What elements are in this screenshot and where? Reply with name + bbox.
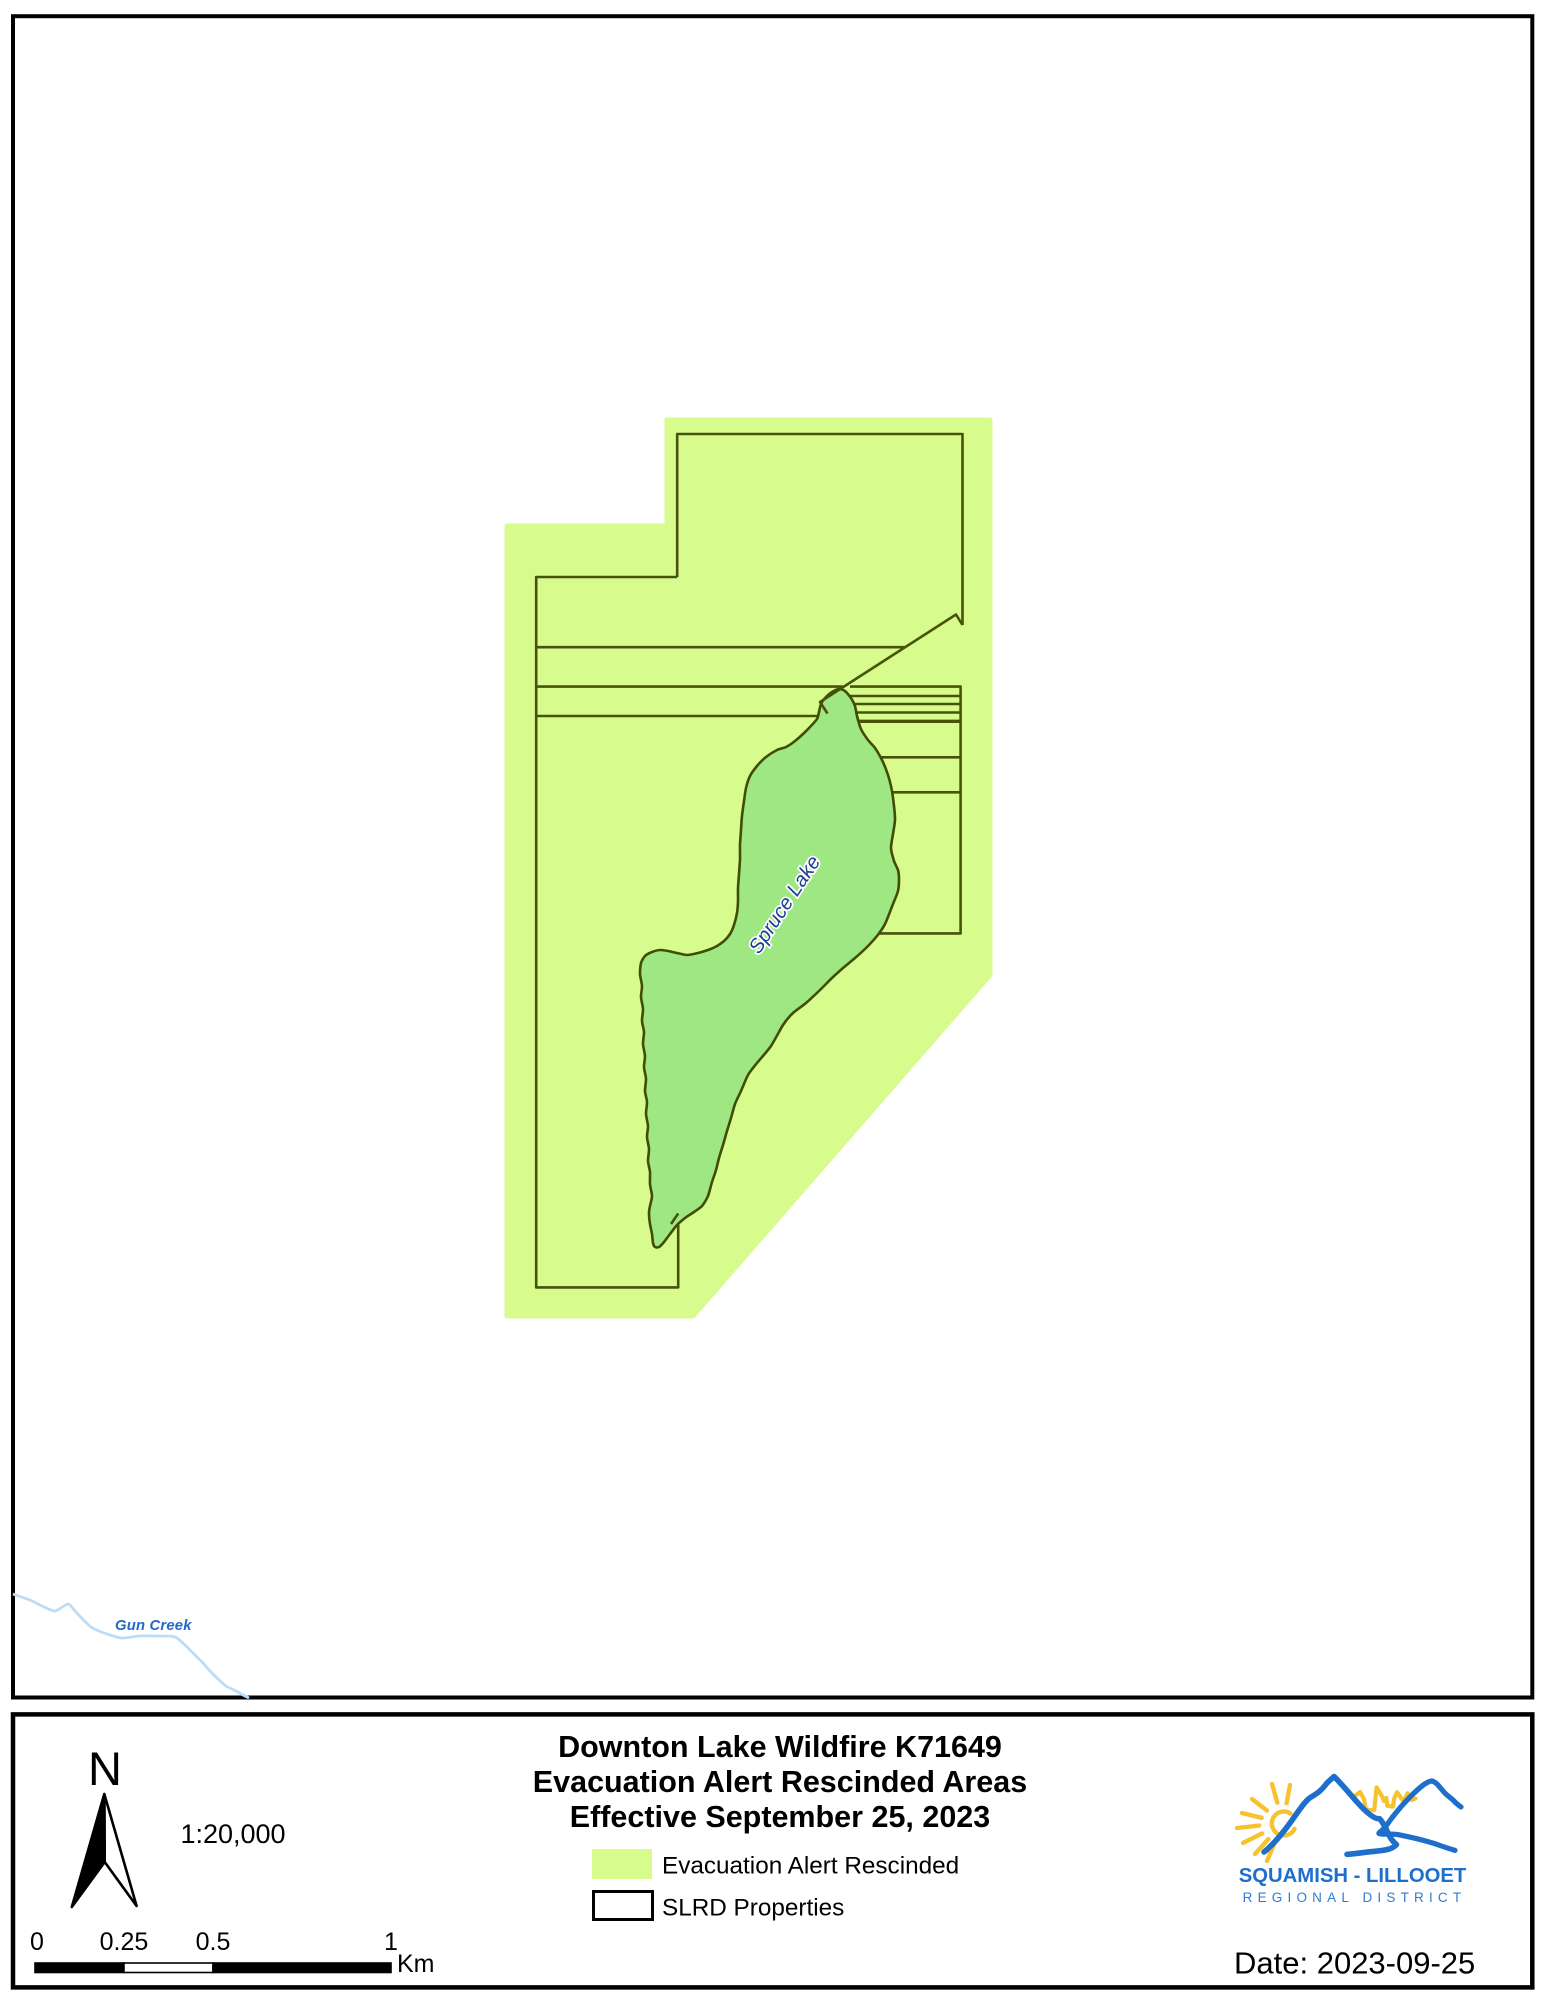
svg-text:SLRD Properties: SLRD Properties xyxy=(662,1895,844,1922)
svg-text:SQUAMISH - LILLOOET: SQUAMISH - LILLOOET xyxy=(1239,1865,1467,1887)
svg-text:N: N xyxy=(88,1742,122,1795)
svg-text:Km: Km xyxy=(397,1950,435,1978)
svg-text:1: 1 xyxy=(384,1928,398,1956)
svg-text:Downton Lake Wildfire K71649: Downton Lake Wildfire K71649 xyxy=(558,1730,1002,1764)
svg-text:Evacuation Alert Rescinded: Evacuation Alert Rescinded xyxy=(662,1853,959,1880)
svg-text:Gun Creek: Gun Creek xyxy=(115,1618,192,1634)
svg-text:REGIONAL DISTRICT: REGIONAL DISTRICT xyxy=(1243,1890,1467,1905)
svg-text:0: 0 xyxy=(30,1928,44,1956)
svg-text:Evacuation Alert Rescinded Are: Evacuation Alert Rescinded Areas xyxy=(533,1765,1027,1799)
svg-text:1:20,000: 1:20,000 xyxy=(180,1819,285,1849)
svg-text:0.25: 0.25 xyxy=(100,1928,149,1956)
svg-text:Date: 2023-09-25: Date: 2023-09-25 xyxy=(1234,1946,1475,1981)
svg-text:Effective September 25, 2023: Effective September 25, 2023 xyxy=(570,1800,990,1834)
svg-text:0.5: 0.5 xyxy=(196,1928,231,1956)
